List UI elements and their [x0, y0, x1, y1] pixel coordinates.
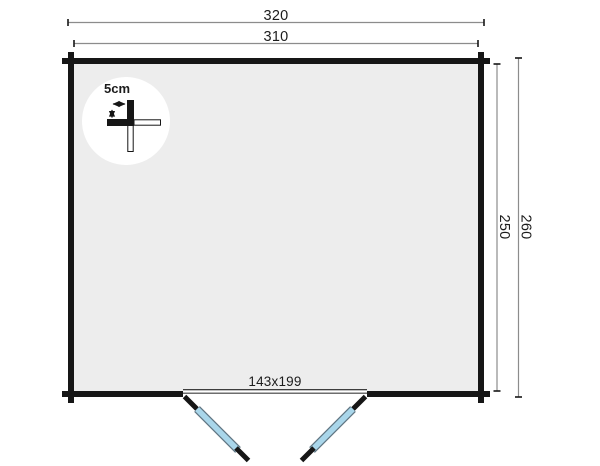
outer-width-label: 320: [263, 8, 288, 24]
cross-bar-left-solid: [107, 119, 134, 126]
door-right-edge-stub: [302, 448, 315, 461]
cross-bar-right-outline: [134, 120, 161, 125]
inner-depth-label: 250: [496, 214, 512, 239]
door-right-hinge-stub: [351, 397, 366, 412]
wall-thickness-detail: 5cm: [82, 77, 170, 165]
dimension-outer-depth: 260: [515, 58, 534, 397]
dimension-inner-depth: 250: [494, 64, 513, 391]
cross-bar-bottom-outline: [128, 126, 133, 152]
floor-plan-diagram: 143x199 320 310 250 260 5cm: [0, 0, 600, 466]
door-left-leaf: [185, 397, 249, 461]
door-left-panel: [197, 409, 238, 450]
door-right-panel: [312, 409, 353, 450]
door-left-hinge-stub: [185, 397, 200, 412]
door-threshold: [183, 390, 367, 394]
dimension-outer-width: 320: [68, 8, 484, 26]
door-size-label: 143x199: [248, 374, 301, 389]
door-right-leaf: [302, 397, 366, 461]
wall-thickness-label: 5cm: [104, 81, 130, 96]
dimension-inner-width: 310: [74, 29, 478, 47]
outer-depth-label: 260: [518, 214, 534, 239]
inner-width-label: 310: [263, 29, 288, 45]
door-left-edge-stub: [236, 448, 249, 461]
